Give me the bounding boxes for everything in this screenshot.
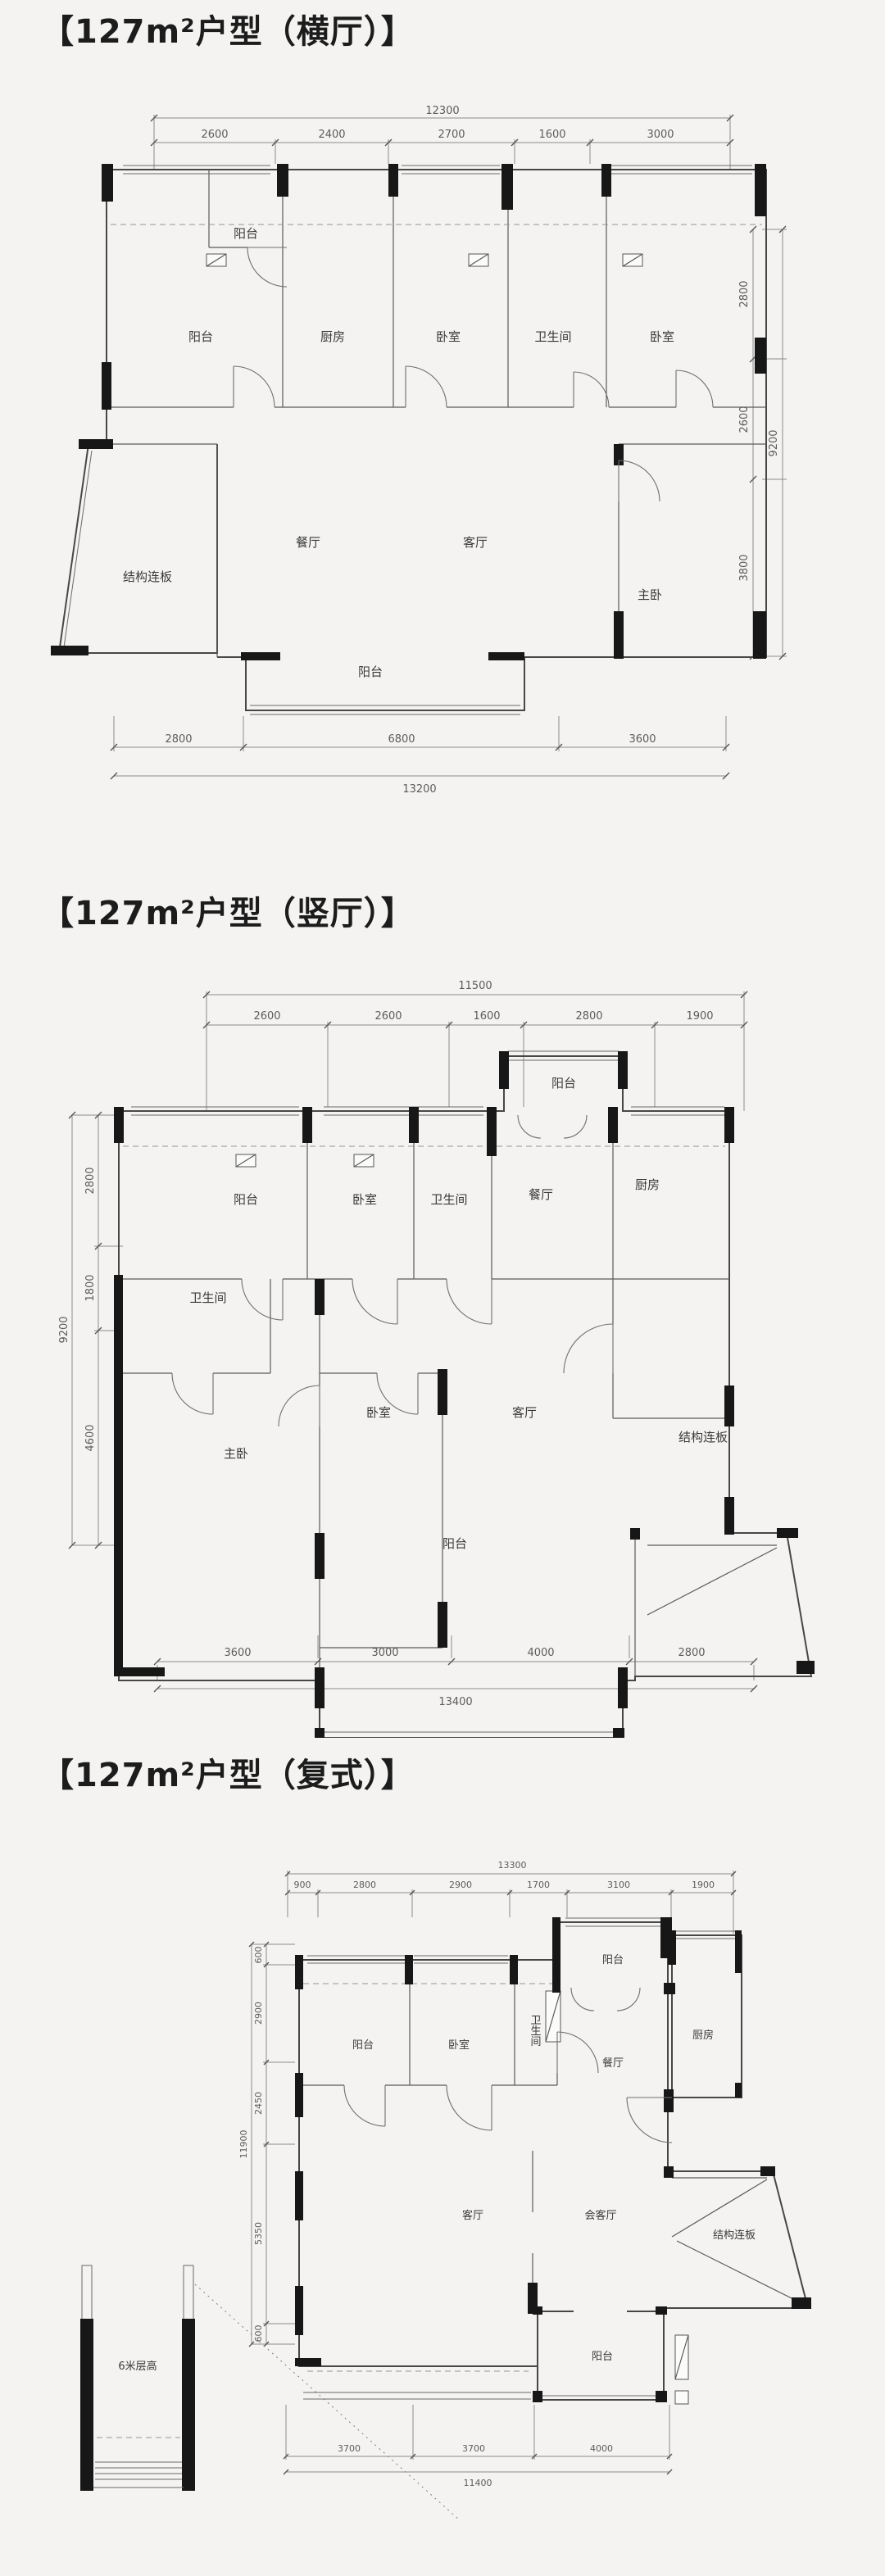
dim-label: 600 [253,1947,264,1964]
room-label-slab: 结构连板 [678,1430,728,1444]
dim-label: 2400 [318,129,345,141]
walls [195,1922,808,2519]
dim-label: 2600 [738,406,751,433]
dim-label-total-top: 12300 [425,105,459,117]
room-label-balcony-bottom: 阳台 [592,2351,613,2363]
dim-label: 600 [253,2325,264,2342]
dim-label: 3000 [371,1647,398,1659]
room-label-reception: 会客厅 [584,2209,616,2222]
dim-label: 4000 [527,1647,554,1659]
ac-unit-icons [236,1154,374,1167]
room-label-slab: 结构连板 [713,2229,756,2242]
dim-label: 6800 [388,733,415,746]
floor-plan-page: { "sections": [ { "title": "【127m²户型（横厅）… [0,0,885,2576]
dim-label: 2900 [449,1880,472,1890]
room-label-bathroom2: 卫生间 [189,1290,226,1305]
page-title-hengting: 【127m²户型（横厅）】 [41,5,415,52]
walls [59,170,766,710]
section-shuting: 【127m²户型（竖厅）】 11500 2600 2600 1600 2800 … [0,882,885,1744]
dim-label: 2600 [253,1010,280,1023]
section-fushi: 【127m²户型（复式）】 13300 900 2800 2900 1700 3… [0,1744,885,2576]
dim-label-total-bottom: 13400 [438,1696,472,1708]
dim-label: 1700 [527,1880,550,1890]
dim-label: 2800 [84,1167,97,1194]
room-label-balcony-top: 阳台 [602,1954,624,1966]
room-label-bathroom1: 卫生间 [430,1192,467,1207]
section-hengting: 【127m²户型（横厅）】 12300 2600 2400 2700 1600 … [0,0,885,882]
room-label-balcony-top: 阳台 [234,226,258,241]
dim-label: 3600 [224,1647,251,1659]
ac-unit-icons [675,2335,688,2404]
doors [234,247,713,501]
black-columns [114,1051,815,1738]
room-label-bedroom1: 卧室 [352,1192,377,1207]
dim-label-total-bottom: 11400 [464,2478,492,2488]
room-label-living: 客厅 [463,535,488,550]
room-label-bedroom2: 卧室 [650,329,674,344]
room-label-dining: 餐厅 [296,535,320,550]
room-label-dining: 餐厅 [529,1187,553,1202]
black-columns [51,164,766,660]
room-label-bedroom2: 卧室 [366,1405,391,1420]
room-label-kitchen: 厨房 [320,329,345,344]
dim-label: 1800 [84,1274,97,1301]
floor-plan-shuting: 11500 2600 2600 1600 2800 1900 2800 1800… [0,959,885,1738]
room-label-balcony-left: 阳台 [352,2039,374,2052]
dim-label: 2800 [165,733,192,746]
windows [64,166,752,714]
room-label-slab: 结构连板 [123,569,172,584]
room-label-balcony-left: 阳台 [188,329,213,344]
dim-label: 3700 [462,2443,485,2454]
ac-unit-icons [206,254,642,266]
dim-label: 2450 [253,2092,264,2115]
room-label-bedroom: 卧室 [448,2039,470,2052]
dim-label: 1600 [538,129,565,141]
page-title-shuting: 【127m²户型（竖厅）】 [41,887,415,934]
floor-plan-hengting: 12300 2600 2400 2700 1600 3000 2800 2600… [0,92,885,841]
room-label-loft: 6米层高 [118,2360,157,2373]
room-label-kitchen: 厨房 [692,2029,714,2042]
room-label-bathroom: 卫生间 [534,329,571,344]
dim-label: 3800 [738,554,751,581]
dim-label: 2900 [253,2002,264,2025]
room-label-balcony-top: 阳台 [551,1076,576,1091]
dim-label: 3700 [338,2443,361,2454]
room-label-kitchen: 厨房 [635,1177,660,1192]
room-labels: 阳台 阳台 厨房 卧室 卫生间 卧室 餐厅 客厅 主卧 结构连板 阳台 [123,226,674,679]
page-title-fushi: 【127m²户型（复式）】 [41,1748,415,1796]
room-label-balcony-left: 阳台 [234,1192,258,1207]
dim-label-total-left: 9200 [58,1316,70,1343]
dim-label: 2600 [201,129,228,141]
dim-label: 2800 [738,280,751,307]
dim-label: 5350 [253,2222,264,2245]
room-label-balcony-bottom: 阳台 [358,664,383,679]
dim-label-total-right: 9200 [768,429,780,456]
room-label-balcony-bottom: 阳台 [442,1536,467,1551]
dim-label: 900 [294,1880,311,1890]
dim-label: 1900 [686,1010,713,1023]
dimension-lines: 12300 2600 2400 2700 1600 3000 2800 2600… [111,105,787,796]
dim-label-total-top: 11500 [458,980,492,992]
room-label-living: 客厅 [462,2209,483,2222]
dim-label: 1600 [473,1010,500,1023]
dim-label: 2800 [353,1880,376,1890]
dim-label-total-bottom: 13200 [402,783,436,796]
walls [119,1056,811,1738]
dim-label: 4600 [84,1424,97,1451]
floor-plan-fushi: 13300 900 2800 2900 1700 3100 1900 600 2… [0,1827,885,2576]
loft-detail-block: 6米层高 [80,2265,195,2491]
dim-label: 3100 [607,1880,630,1890]
room-label-master: 主卧 [638,587,662,602]
dim-label-total-left: 11900 [238,2130,249,2159]
dim-label: 3600 [629,733,656,746]
dim-label: 2800 [575,1010,602,1023]
black-columns [295,1917,811,2402]
dim-label: 2600 [374,1010,402,1023]
room-label-bathroom: 卫生间 [529,2015,542,2047]
room-label-dining: 餐厅 [602,2057,624,2070]
room-label-bedroom1: 卧室 [436,329,461,344]
dim-label: 3000 [647,129,674,141]
room-label-master: 主卧 [224,1446,248,1461]
dim-label: 2800 [678,1647,705,1659]
dim-label: 1900 [692,1880,715,1890]
dim-label: 2700 [438,129,465,141]
dim-label-total-top: 13300 [498,1860,527,1871]
dimension-lines: 11500 2600 2600 1600 2800 1900 2800 1800… [58,980,757,1708]
room-label-living: 客厅 [512,1405,537,1420]
dim-label: 4000 [590,2443,613,2454]
